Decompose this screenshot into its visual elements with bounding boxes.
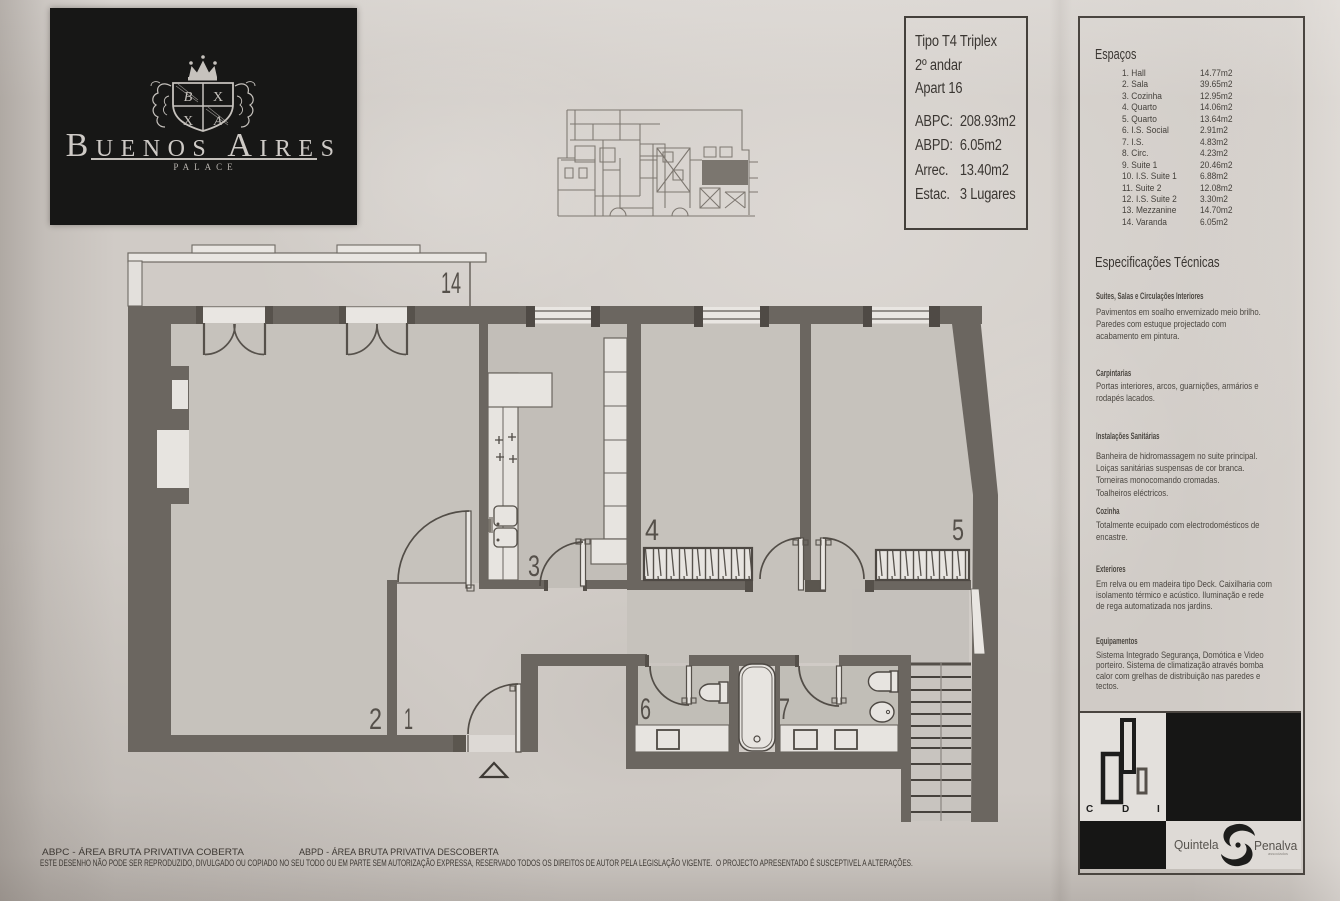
svg-text:7: 7 <box>779 693 790 726</box>
svg-text:4: 4 <box>645 514 659 547</box>
svg-text:1: 1 <box>404 703 413 736</box>
svg-text:D: D <box>1122 804 1129 815</box>
svg-text:14: 14 <box>441 267 461 300</box>
svg-text:3: 3 <box>528 550 540 583</box>
svg-text:2: 2 <box>369 703 382 736</box>
svg-text:5: 5 <box>952 514 964 547</box>
svg-text:C: C <box>1086 804 1093 815</box>
svg-text:I: I <box>1157 804 1160 815</box>
svg-text:6: 6 <box>640 693 651 726</box>
